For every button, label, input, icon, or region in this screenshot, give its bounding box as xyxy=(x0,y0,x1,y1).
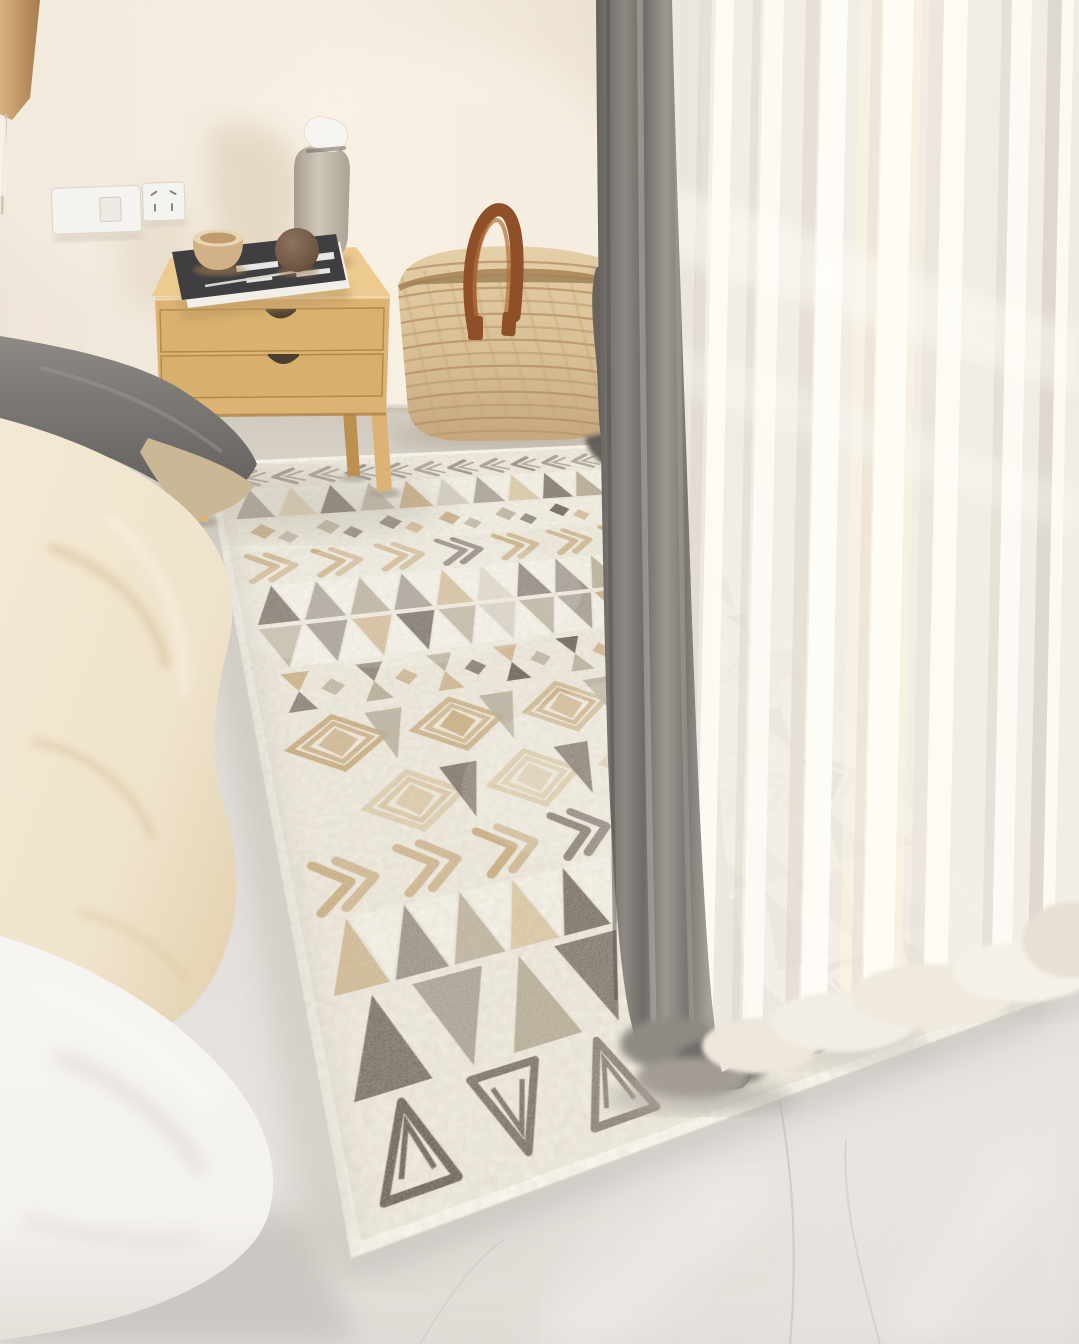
bed xyxy=(0,336,273,1340)
bedroom-scene-photo xyxy=(0,0,1079,1344)
curtains xyxy=(596,0,1079,1284)
bowl xyxy=(193,230,247,277)
foreground-layer xyxy=(0,0,1079,1344)
wooden-sphere xyxy=(275,228,319,277)
drawer-bottom xyxy=(161,354,383,398)
